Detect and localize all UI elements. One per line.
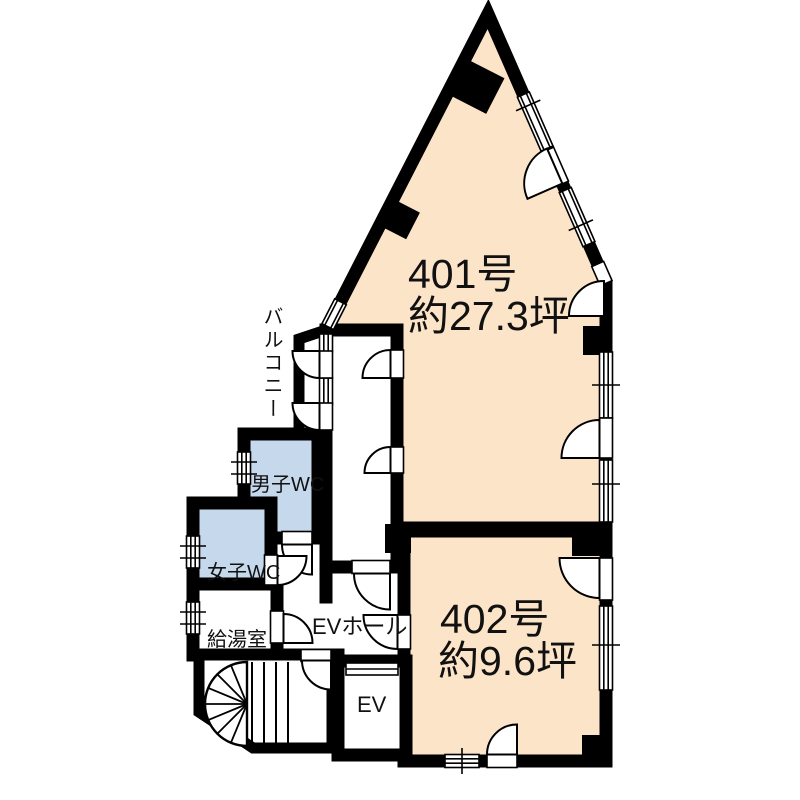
mens-wc-label: 男子WC xyxy=(251,474,324,496)
floor-plan-canvas: 401号 約27.3坪 402号 約9.6坪 バルコニー 男子WC 女子WC 給… xyxy=(0,0,800,800)
room-401-area: 約27.3坪 xyxy=(408,293,570,339)
wall-pillar xyxy=(583,326,600,355)
elevator-door xyxy=(346,663,398,675)
wall-pillar xyxy=(572,524,606,556)
balcony-label: バルコニー xyxy=(260,306,282,421)
floor-plan: 401号 約27.3坪 402号 約9.6坪 バルコニー 男子WC 女子WC 給… xyxy=(0,0,800,800)
window xyxy=(320,334,333,352)
window xyxy=(320,378,333,404)
womens-wc-label: 女子WC xyxy=(207,561,280,584)
room-402-area: 約9.6坪 xyxy=(438,638,577,684)
wall-pillar xyxy=(582,735,600,756)
ev-hall-label: EVホール xyxy=(312,614,407,639)
kitchenette-label: 給湯室 xyxy=(207,628,267,651)
wall-stub xyxy=(320,561,333,604)
wall-pillar xyxy=(385,524,411,553)
elevator-label: EV xyxy=(357,692,387,717)
room-402-name: 402号 xyxy=(440,596,549,642)
room-401-name: 401号 xyxy=(408,251,517,297)
